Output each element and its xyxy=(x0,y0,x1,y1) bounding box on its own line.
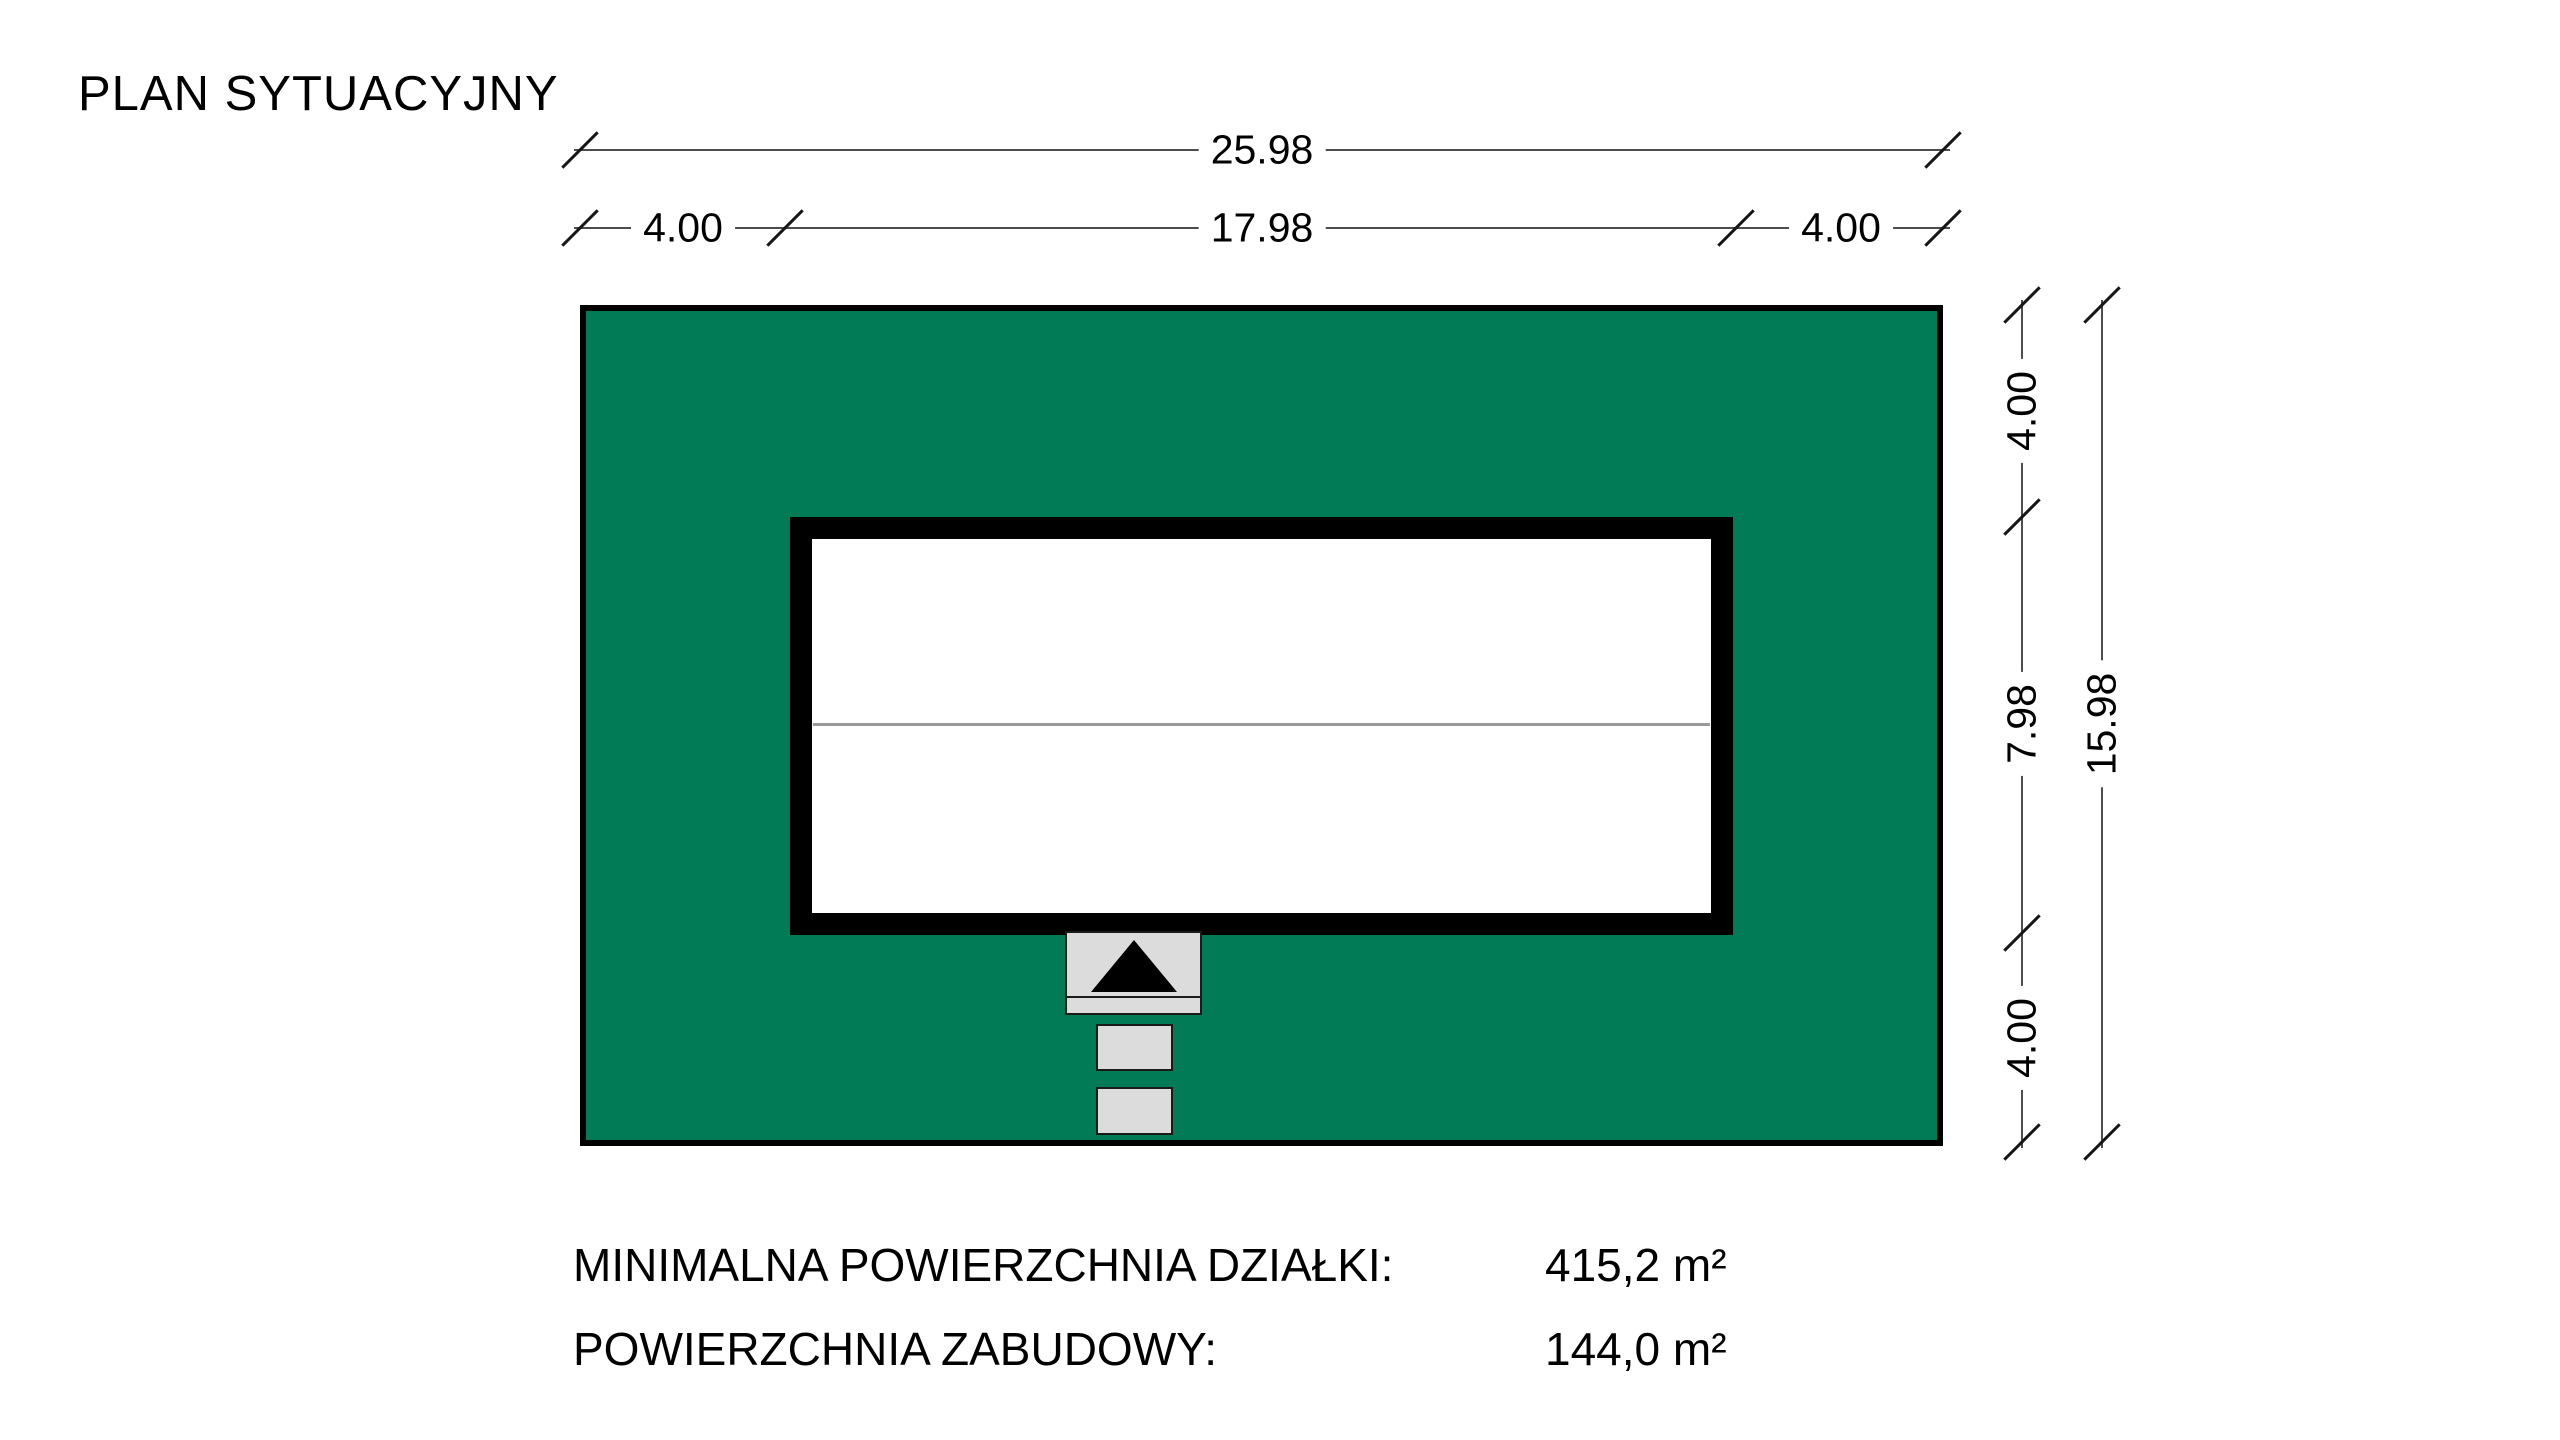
building-footprint xyxy=(790,517,1733,935)
min-plot-area-label: MINIMALNA POWIERZCHNIA DZIAŁKI: xyxy=(573,1240,1393,1291)
min-plot-area-value: 415,2 m² xyxy=(1545,1240,1727,1291)
roof-ridge-line xyxy=(813,723,1710,726)
dim-label-building-width: 17.98 xyxy=(1199,205,1326,250)
building-area-value: 144,0 m² xyxy=(1545,1324,1727,1375)
dim-label-total-depth: 15.98 xyxy=(2079,661,2124,788)
entrance-porch xyxy=(1065,931,1202,1015)
entrance-step xyxy=(1096,1024,1173,1071)
dim-label-left-setback: 4.00 xyxy=(631,205,735,250)
site-plan-canvas: PLAN SYTUACYJNY 25.98 4.00 17.98 4.00 4.… xyxy=(0,0,2560,1440)
dim-label-top-setback: 4.00 xyxy=(1999,359,2044,463)
page-title: PLAN SYTUACYJNY xyxy=(78,66,559,122)
dim-label-building-depth: 7.98 xyxy=(1999,672,2044,776)
dim-label-total-width: 25.98 xyxy=(1199,127,1326,172)
building-area-label: POWIERZCHNIA ZABUDOWY: xyxy=(573,1324,1217,1375)
dim-label-right-setback: 4.00 xyxy=(1789,205,1893,250)
dim-label-bottom-setback: 4.00 xyxy=(1999,986,2044,1090)
entrance-arrow-icon xyxy=(1091,940,1177,992)
entrance-step xyxy=(1096,1087,1173,1135)
porch-edge-line xyxy=(1067,996,1200,998)
